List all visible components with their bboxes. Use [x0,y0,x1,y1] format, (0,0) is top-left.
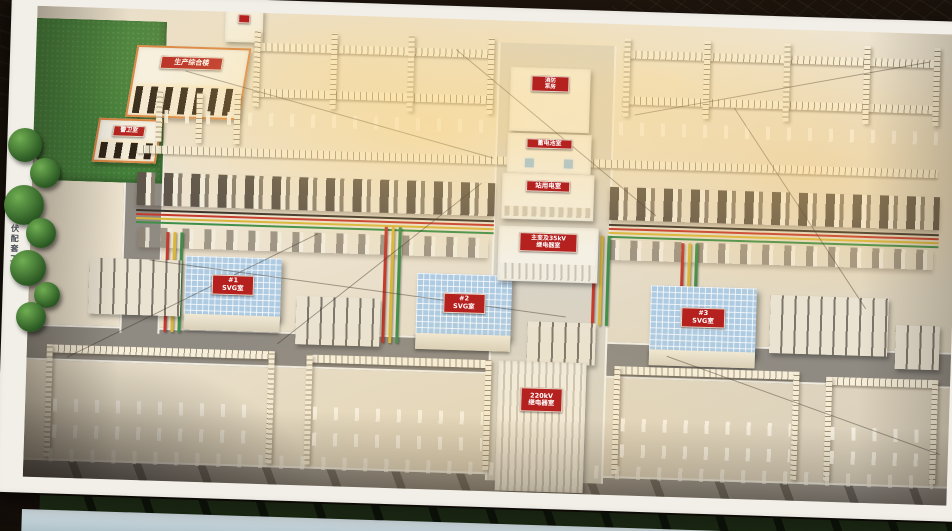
mv-relay-sign: 主变及35kV 继电器室 [519,232,578,253]
guard-room-sign: 警卫室 [112,125,146,137]
station-power-building: 站用电室 [501,172,594,221]
admin-building: 生产综合楼 [125,45,251,120]
insulator-row [619,122,939,145]
tree [30,158,60,188]
station-power-base [504,206,590,219]
gantry-post [622,38,630,116]
switch-row [830,451,930,467]
svg3-building: #3 SVG室 [649,285,757,356]
relay220-sign-line2: 继电器室 [528,399,554,407]
equipment-rack [769,295,889,357]
equipment-rack [895,325,940,370]
gantry-post [265,351,275,463]
battery-room-building: 蓄电池室 [507,133,592,176]
switch-row [312,433,482,451]
gantry-post [790,372,799,480]
model-base: 伏配套工 生产综合楼 警卫室 [0,0,952,522]
equipment-rack [527,321,596,365]
riser-yellow [388,227,395,343]
switch-row [53,398,263,418]
guard-room-building: 警卫室 [92,118,164,164]
gantry-beam [623,96,933,114]
gantry-post [611,366,620,474]
admin-building-sign: 生产综合楼 [159,56,223,71]
admin-building-sign-text: 生产综合楼 [173,59,209,68]
small-top-structure-sign [238,14,250,23]
gantry-beam [253,89,493,105]
svg1-wall [183,314,279,333]
relay220-sign: 220kV 继电器室 [520,387,563,412]
small-pole [233,94,241,144]
station-power-sign-text: 站用电室 [535,182,561,190]
switch-row [830,427,930,443]
insulator-row [164,110,494,133]
svg1-sign-line2: SVG室 [222,285,244,293]
gantry-post [932,48,940,126]
switch-row [313,407,483,425]
tree [26,218,56,248]
fire-pump-building: 消防 泵房 [509,67,591,133]
phase-riser-2 [381,227,402,343]
riser-green [605,236,611,326]
riser-yellow [598,236,604,326]
battery-room-sign: 蓄电池室 [526,138,572,149]
substation-yard: 生产综合楼 警卫室 [23,6,952,506]
gantry-post [303,354,312,464]
svg2-wall [415,333,510,352]
svg2-sign-line2: SVG室 [453,303,475,311]
switch-row [621,418,791,436]
svg3-sign: #3 SVG室 [681,307,726,328]
gantry-beam [624,50,934,68]
fire-pump-sign: 消防 泵房 [531,75,569,92]
svg1-sign: #1 SVG室 [212,274,255,295]
equipment-rack [295,296,380,347]
battery-room-sign-text: 蓄电池室 [537,140,561,148]
switch-row [620,444,790,462]
small-pole [195,93,203,143]
guard-room-sign-text: 警卫室 [119,128,138,135]
svg3-sign-line2: SVG室 [692,317,714,325]
mv-relay-building: 主变及35kV 继电器室 [497,225,599,283]
svg2-sign: #2 SVG室 [443,292,486,313]
gantry-post [43,344,53,456]
mv-relay-sign-line2: 继电器室 [536,242,560,250]
battery-room-window [525,158,534,167]
tree [16,302,46,332]
tree [8,128,42,162]
battery-room-window [564,159,573,168]
svg3-wall [649,349,755,368]
station-power-sign: 站用电室 [526,180,570,192]
gantry-post [702,41,710,119]
switch-row [52,424,262,444]
photo-of-substation-model: 伏配套工 生产综合楼 警卫室 [0,0,952,531]
gantry-post [862,46,870,124]
mv-relay-roof-ribs [499,262,595,281]
gantry-post [782,43,790,121]
tree [10,250,46,286]
transformer-row-left [136,172,495,216]
transformer-row-right [609,187,940,230]
fire-pump-sign-line2: 泵房 [545,84,556,91]
